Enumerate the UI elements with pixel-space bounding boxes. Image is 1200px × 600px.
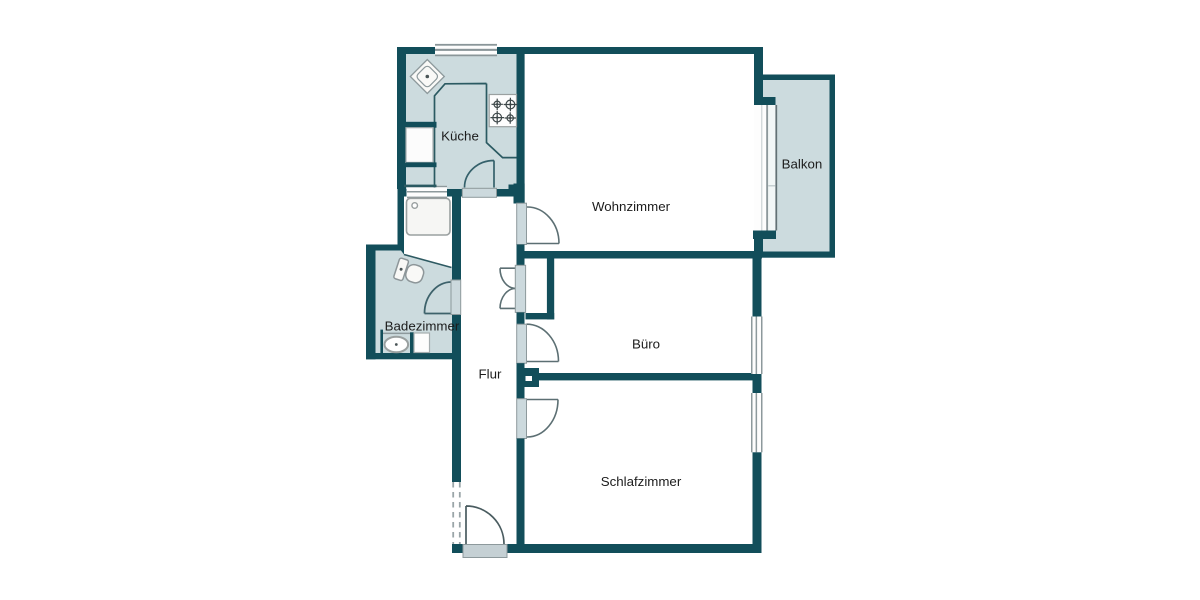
svg-text:Balkon: Balkon <box>782 157 823 172</box>
svg-text:Küche: Küche <box>441 129 479 144</box>
svg-text:Büro: Büro <box>632 337 660 352</box>
svg-text:Schlafzimmer: Schlafzimmer <box>601 474 682 489</box>
svg-text:Wohnzimmer: Wohnzimmer <box>592 199 671 214</box>
svg-text:Badezimmer: Badezimmer <box>385 319 460 334</box>
svg-text:Flur: Flur <box>479 367 502 382</box>
